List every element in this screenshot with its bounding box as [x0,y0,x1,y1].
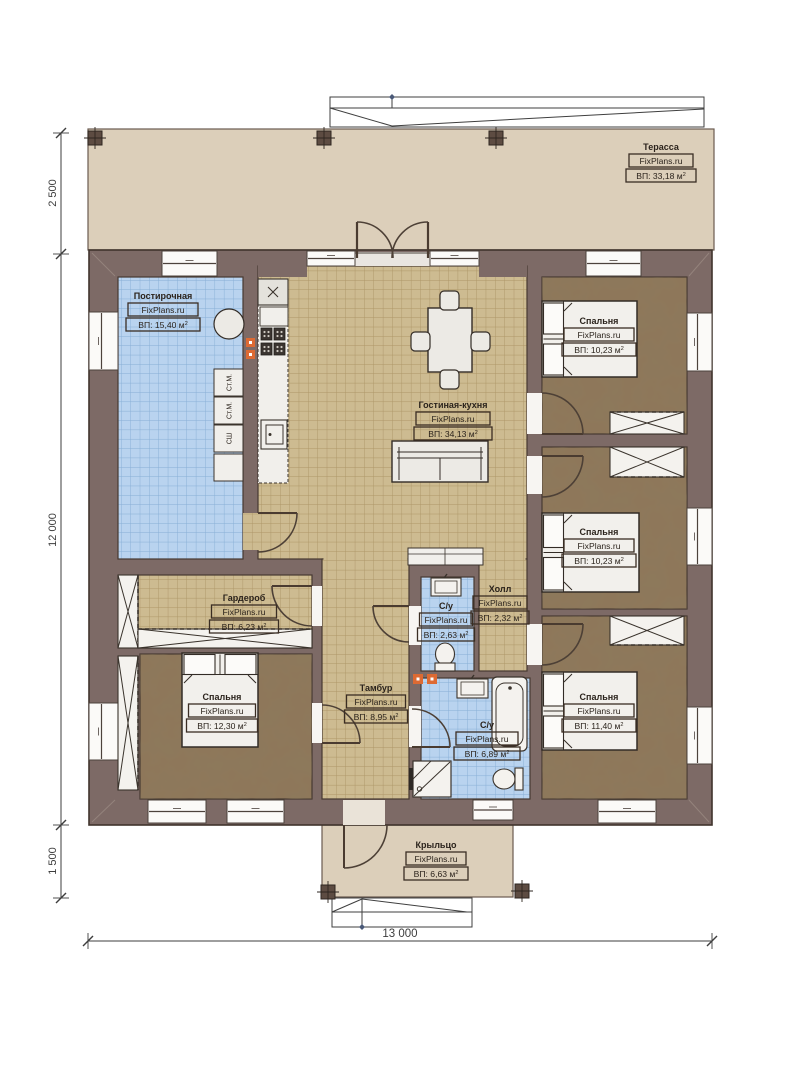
svg-text:FixPlans.ru: FixPlans.ru [425,615,468,625]
svg-text:Крыльцо: Крыльцо [416,840,457,850]
svg-text:Постирочная: Постирочная [134,291,192,301]
svg-text:ВП: 10,23 м2: ВП: 10,23 м2 [574,556,624,566]
svg-text:Спальня: Спальня [580,316,619,326]
svg-text:Спальня: Спальня [580,527,619,537]
svg-text:FixPlans.ru: FixPlans.ru [142,305,185,315]
svg-text:Гардероб: Гардероб [223,593,266,603]
svg-text:FixPlans.ru: FixPlans.ru [201,706,244,716]
svg-text:12 000: 12 000 [47,513,59,547]
svg-text:ВП: 11,40 м2: ВП: 11,40 м2 [575,721,624,731]
svg-text:Ст.М.: Ст.М. [227,374,234,391]
svg-text:FixPlans.ru: FixPlans.ru [640,156,683,166]
svg-text:С/у: С/у [439,601,453,611]
svg-text:ВП: 34,13 м2: ВП: 34,13 м2 [428,429,478,439]
svg-text:2 500: 2 500 [47,179,59,207]
svg-text:Тамбур: Тамбур [360,683,393,693]
svg-text:FixPlans.ru: FixPlans.ru [466,734,509,744]
svg-text:ВП: 6,23 м2: ВП: 6,23 м2 [222,622,267,632]
svg-text:ВП: 12,30 м2: ВП: 12,30 м2 [197,721,247,731]
svg-text:FixPlans.ru: FixPlans.ru [355,697,398,707]
svg-text:ВП: 10,23 м2: ВП: 10,23 м2 [574,345,624,355]
svg-text:Терасса: Терасса [643,142,680,152]
svg-text:FixPlans.ru: FixPlans.ru [578,706,621,716]
svg-text:ВП: 8,95 м2: ВП: 8,95 м2 [354,712,399,722]
svg-text:С/у: С/у [480,720,494,730]
svg-text:FixPlans.ru: FixPlans.ru [578,330,621,340]
svg-text:ВП: 2,63 м2: ВП: 2,63 м2 [424,630,469,640]
svg-text:FixPlans.ru: FixPlans.ru [479,598,522,608]
svg-text:FixPlans.ru: FixPlans.ru [415,854,458,864]
svg-text:1 500: 1 500 [47,847,59,875]
svg-text:ВП: 6,63 м2: ВП: 6,63 м2 [414,869,459,879]
svg-text:ВП: 2,32 м2: ВП: 2,32 м2 [478,613,523,623]
svg-text:FixPlans.ru: FixPlans.ru [432,414,475,424]
svg-text:СШ: СШ [227,433,234,444]
svg-text:Гостиная-кухня: Гостиная-кухня [419,400,488,410]
svg-text:FixPlans.ru: FixPlans.ru [578,541,621,551]
svg-text:ВП: 6,89 м2: ВП: 6,89 м2 [465,749,510,759]
svg-text:Спальня: Спальня [580,692,619,702]
svg-text:FixPlans.ru: FixPlans.ru [223,607,266,617]
svg-text:Ст.М.: Ст.М. [227,402,234,419]
svg-text:Спальня: Спальня [203,692,242,702]
svg-text:ВП: 33,18 м2: ВП: 33,18 м2 [636,171,686,181]
svg-text:Холл: Холл [489,584,512,594]
svg-text:13 000: 13 000 [382,928,417,940]
svg-text:ВП: 15,40 м2: ВП: 15,40 м2 [138,320,188,330]
